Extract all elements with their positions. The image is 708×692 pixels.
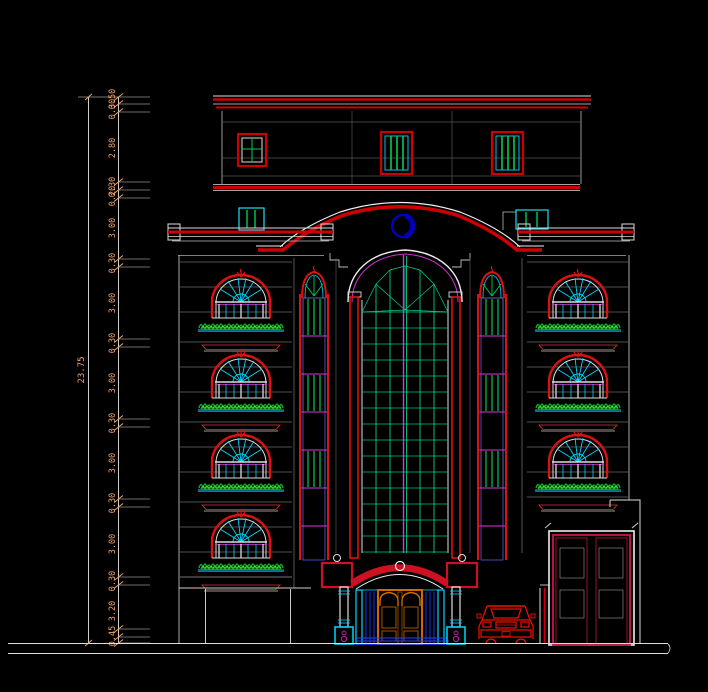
dim-label: 0.30 [108, 333, 118, 353]
dim-label: 0.30 [108, 493, 118, 513]
dim-labels: 0.500.302.800.300.203.000.303.000.303.00… [108, 89, 118, 646]
entrance [335, 587, 465, 644]
tower-cornice-left [168, 224, 333, 256]
curtain-wall [348, 250, 462, 558]
dim-label: 0.30 [108, 413, 118, 433]
arched-balcony-window [198, 349, 284, 431]
dim-ticks [114, 94, 150, 647]
arched-balcony-window [198, 269, 284, 351]
entrance-double-door [378, 590, 422, 644]
crescent-ornament [392, 215, 414, 237]
roof-window-center [381, 132, 412, 174]
dim-label: 3.00 [108, 453, 118, 473]
parapet-window-right [503, 210, 548, 230]
car [477, 606, 535, 644]
dim-label: 3.00 [108, 293, 118, 313]
arched-balcony-window [198, 429, 284, 511]
dim-label: 2.80 [108, 138, 118, 158]
total-height-label: 23.75 [77, 356, 87, 383]
arched-balcony-window [535, 349, 621, 431]
door-knob [394, 619, 397, 622]
dim-label: 0.30 [108, 99, 118, 119]
lattice-panel-right [478, 266, 506, 560]
cad-viewport: 23.75 0.500.302.800.300.203.000.303.000.… [0, 0, 708, 692]
arched-balcony-window [535, 429, 621, 511]
service-gate [540, 523, 638, 645]
dim-label: 3.00 [108, 218, 118, 238]
entrance-canopy [322, 555, 477, 590]
right-corner-ledge [610, 500, 640, 643]
dim-label: 3.00 [108, 373, 118, 393]
pediment [256, 203, 544, 268]
door-knob [403, 619, 406, 622]
roof-window-left [238, 134, 266, 166]
roof-floor [213, 96, 591, 191]
dimension-chain: 23.75 0.500.302.800.300.203.000.303.000.… [77, 89, 150, 647]
lattice-panel-left [300, 266, 328, 560]
dim-label: 3.00 [108, 534, 118, 554]
dim-label: 0.20 [108, 186, 118, 206]
dim-label: 3.20 [108, 601, 118, 621]
dim-label: 0.30 [108, 571, 118, 591]
porch-column-right [447, 587, 465, 644]
elevation-drawing: 23.75 0.500.302.800.300.203.000.303.000.… [0, 0, 708, 692]
arched-balcony-window [535, 269, 621, 351]
parapet-window-left [239, 208, 264, 230]
porch-column-left [335, 587, 353, 644]
dim-label: 0.30 [108, 253, 118, 273]
ground-floor-piers [179, 588, 311, 643]
tower-windows [198, 269, 621, 591]
roof-window-right [492, 132, 523, 174]
arched-balcony-window [198, 509, 284, 591]
